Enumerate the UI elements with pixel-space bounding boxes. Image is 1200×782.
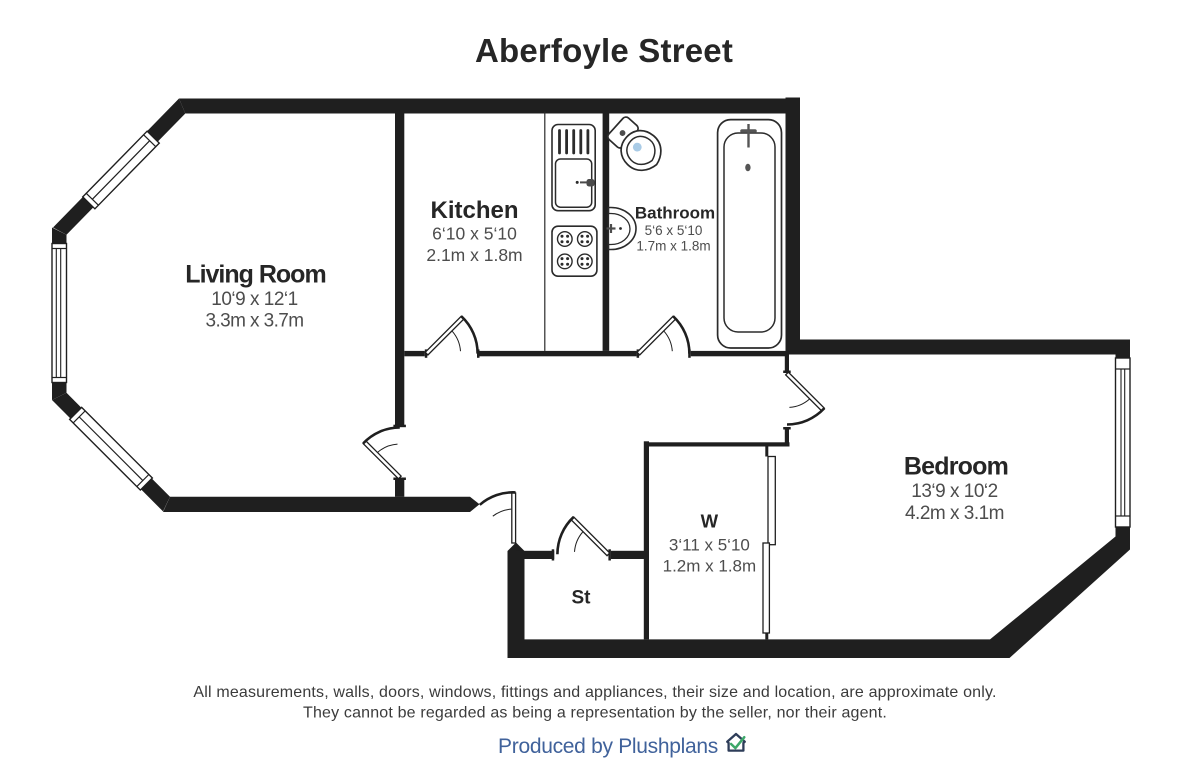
svg-text:Kitchen: Kitchen [430, 197, 518, 224]
svg-text:St: St [572, 588, 592, 609]
svg-text:13‘9 x 10‘2: 13‘9 x 10‘2 [911, 481, 997, 502]
svg-text:Produced by Plushplans: Produced by Plushplans [498, 735, 718, 758]
svg-text:10‘9 x 12‘1: 10‘9 x 12‘1 [211, 289, 297, 310]
svg-text:1.2m x 1.8m: 1.2m x 1.8m [663, 557, 757, 576]
svg-text:2.1m x 1.8m: 2.1m x 1.8m [426, 245, 522, 265]
svg-text:3.3m x 3.7m: 3.3m x 3.7m [206, 311, 304, 332]
svg-text:4.2m x 3.1m: 4.2m x 3.1m [905, 503, 1004, 524]
svg-text:3‘11 x 5‘10: 3‘11 x 5‘10 [669, 536, 750, 555]
svg-text:They cannot be regarded as bei: They cannot be regarded as being a repre… [303, 705, 887, 722]
svg-text:Aberfoyle Street: Aberfoyle Street [475, 32, 733, 69]
svg-text:6‘10 x 5‘10: 6‘10 x 5‘10 [432, 224, 517, 244]
svg-text:Bedroom: Bedroom [904, 452, 1008, 480]
svg-text:W: W [701, 511, 719, 532]
svg-text:Bathroom: Bathroom [635, 204, 715, 223]
svg-text:5‘6 x 5‘10: 5‘6 x 5‘10 [645, 223, 703, 238]
svg-text:1.7m x 1.8m: 1.7m x 1.8m [636, 239, 710, 254]
svg-text:All measurements, walls, doors: All measurements, walls, doors, windows,… [193, 684, 996, 701]
svg-text:Living Room: Living Room [185, 261, 325, 289]
